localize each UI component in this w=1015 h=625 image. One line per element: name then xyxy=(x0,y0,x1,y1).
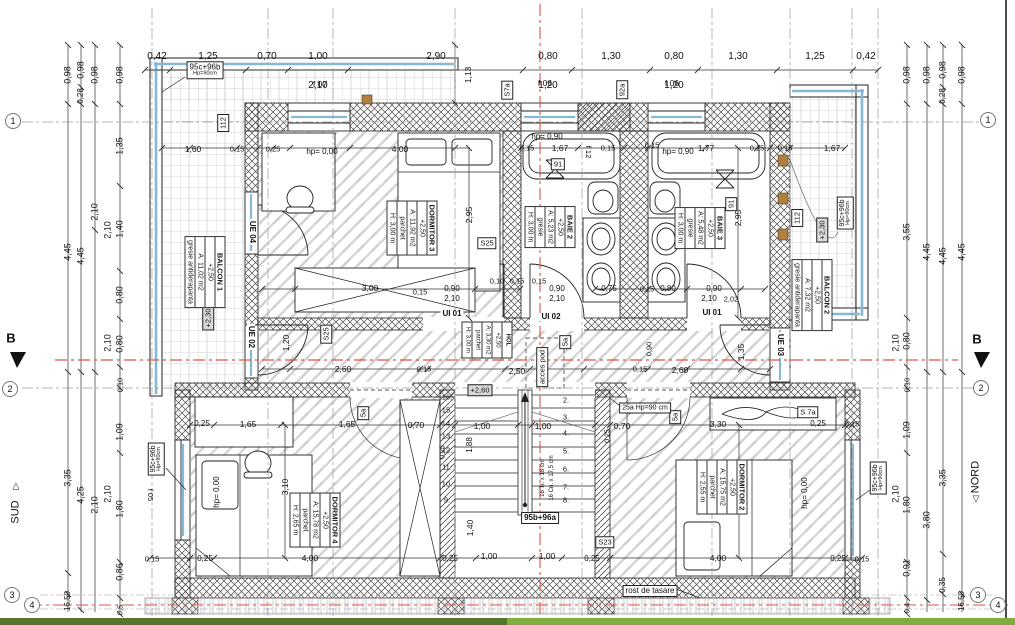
stairs xyxy=(455,390,595,515)
green-strip-left xyxy=(0,618,507,625)
green-strip-right xyxy=(507,618,1015,625)
floor-plan-canvas: 0,421,250,701,002,900,801,300,801,301,25… xyxy=(0,0,1015,625)
plan-drawing xyxy=(0,0,1015,625)
foundation-band xyxy=(145,598,890,614)
